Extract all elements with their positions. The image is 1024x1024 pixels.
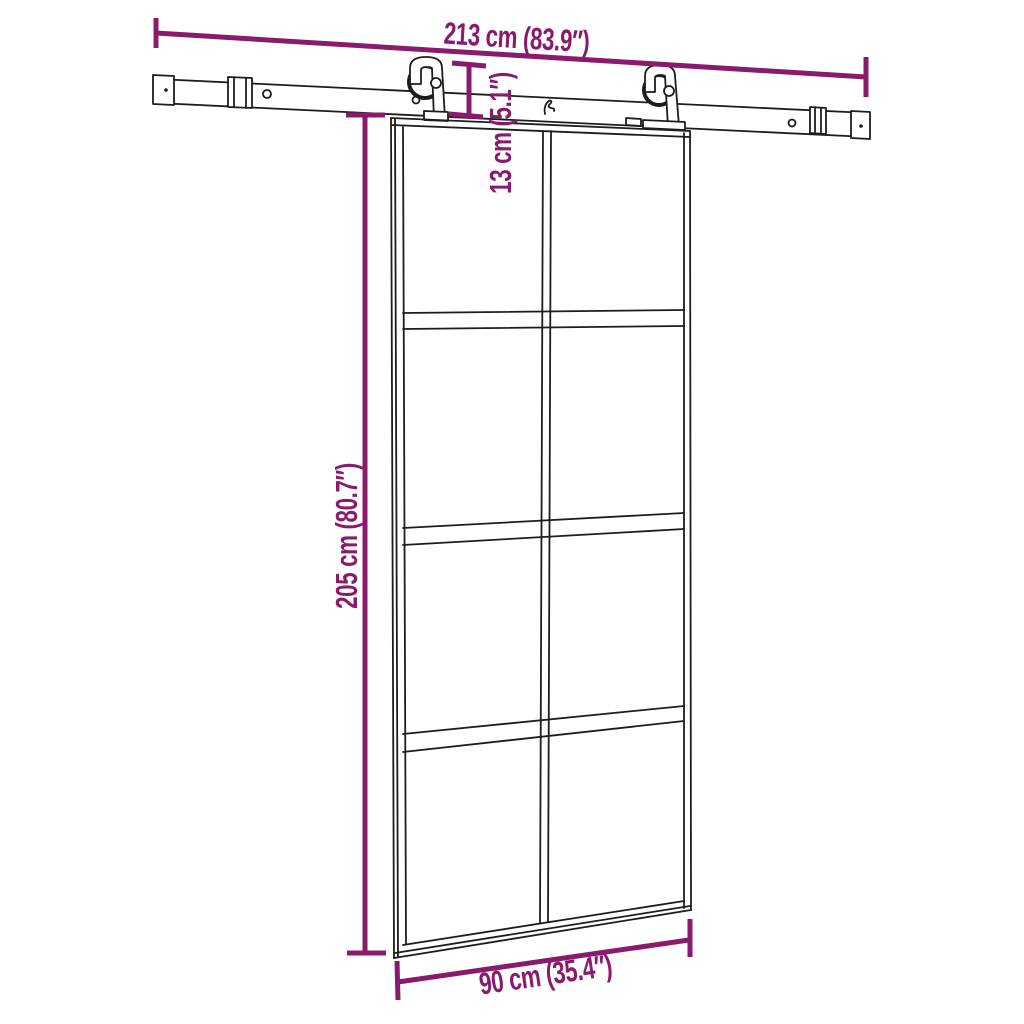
dimension-tick [449,114,483,117]
rail-right-coupling [810,107,826,134]
rail-left-end-cap [153,75,174,105]
rail-right-cap-screw [859,124,863,128]
rail-mount-hole [789,120,796,127]
rail-left-coupling [228,77,252,108]
door-horizontal-mullion-2 [403,513,684,545]
door-center-mullion [540,131,543,923]
rail-left-cap-screw [164,88,168,92]
door-horizontal-mullion-1 [403,310,684,329]
right-hanger-bolt [664,86,674,96]
sliding-door-diagram-svg: 213 cm (83.9″) 13 cm (5.1″) 205 cm (80.7… [0,0,1024,1024]
dimension-tick [397,961,398,1000]
dimension-label-door-width: 90 cm (35.4″) [477,948,614,1001]
left-roller-hanger [409,57,448,121]
door-left-edge [391,118,394,958]
right-roller-hanger [626,65,685,130]
door-bottom-edge [394,910,691,958]
door-top-stopper [626,118,641,126]
door-left-stile-inner [403,127,406,944]
door-right-edge [690,131,691,910]
dimension-door-height: 205 cm (80.7″) [329,115,386,953]
left-hanger-bolt [431,78,441,88]
door-horizontal-mullion-3 [403,706,684,752]
rail-mount-hole [263,90,271,98]
dimension-label-door-height: 205 cm (80.7″) [329,463,363,609]
dimension-door-width: 90 cm (35.4″) [397,919,690,1001]
product-diagram: 213 cm (83.9″) 13 cm (5.1″) 205 cm (80.7… [0,0,1024,1024]
dimension-label-gap: 13 cm (5.1″) [483,72,517,194]
dimension-tick [452,63,486,66]
door-drawing [391,118,691,958]
dimension-annotations: 213 cm (83.9″) 13 cm (5.1″) 205 cm (80.7… [156,16,866,1001]
rail-break-mark [545,101,555,114]
